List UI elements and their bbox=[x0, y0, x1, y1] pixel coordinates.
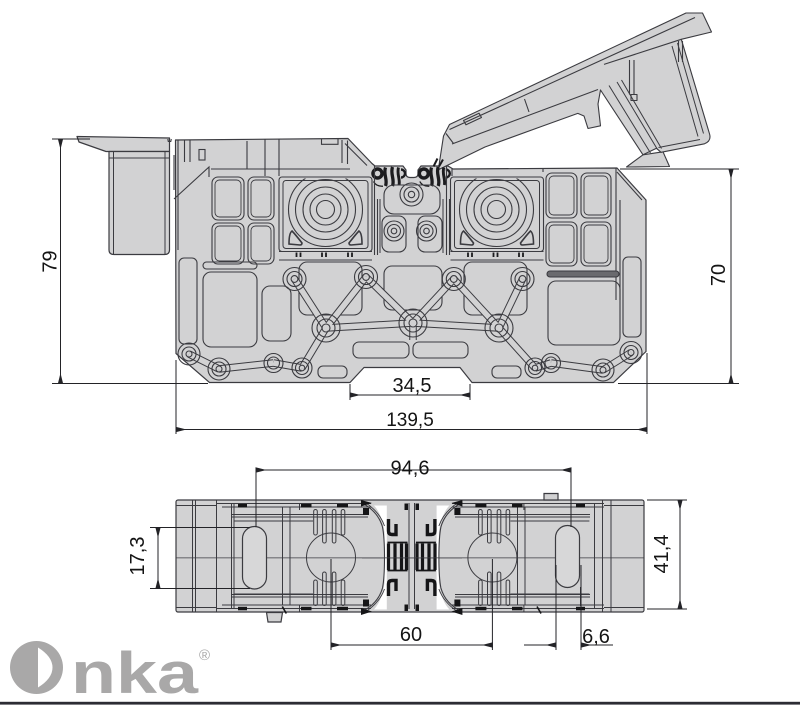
svg-text:139,5: 139,5 bbox=[386, 410, 434, 431]
svg-text:®: ® bbox=[199, 647, 210, 664]
svg-text:17,3: 17,3 bbox=[127, 537, 149, 576]
svg-text:60: 60 bbox=[400, 624, 422, 646]
svg-text:nka: nka bbox=[71, 641, 199, 706]
svg-text:79: 79 bbox=[40, 250, 62, 272]
svg-text:70: 70 bbox=[708, 264, 730, 286]
svg-text:34,5: 34,5 bbox=[393, 375, 432, 397]
svg-text:94,6: 94,6 bbox=[391, 458, 430, 480]
svg-text:6,6: 6,6 bbox=[582, 626, 610, 648]
svg-text:41,4: 41,4 bbox=[651, 535, 673, 574]
